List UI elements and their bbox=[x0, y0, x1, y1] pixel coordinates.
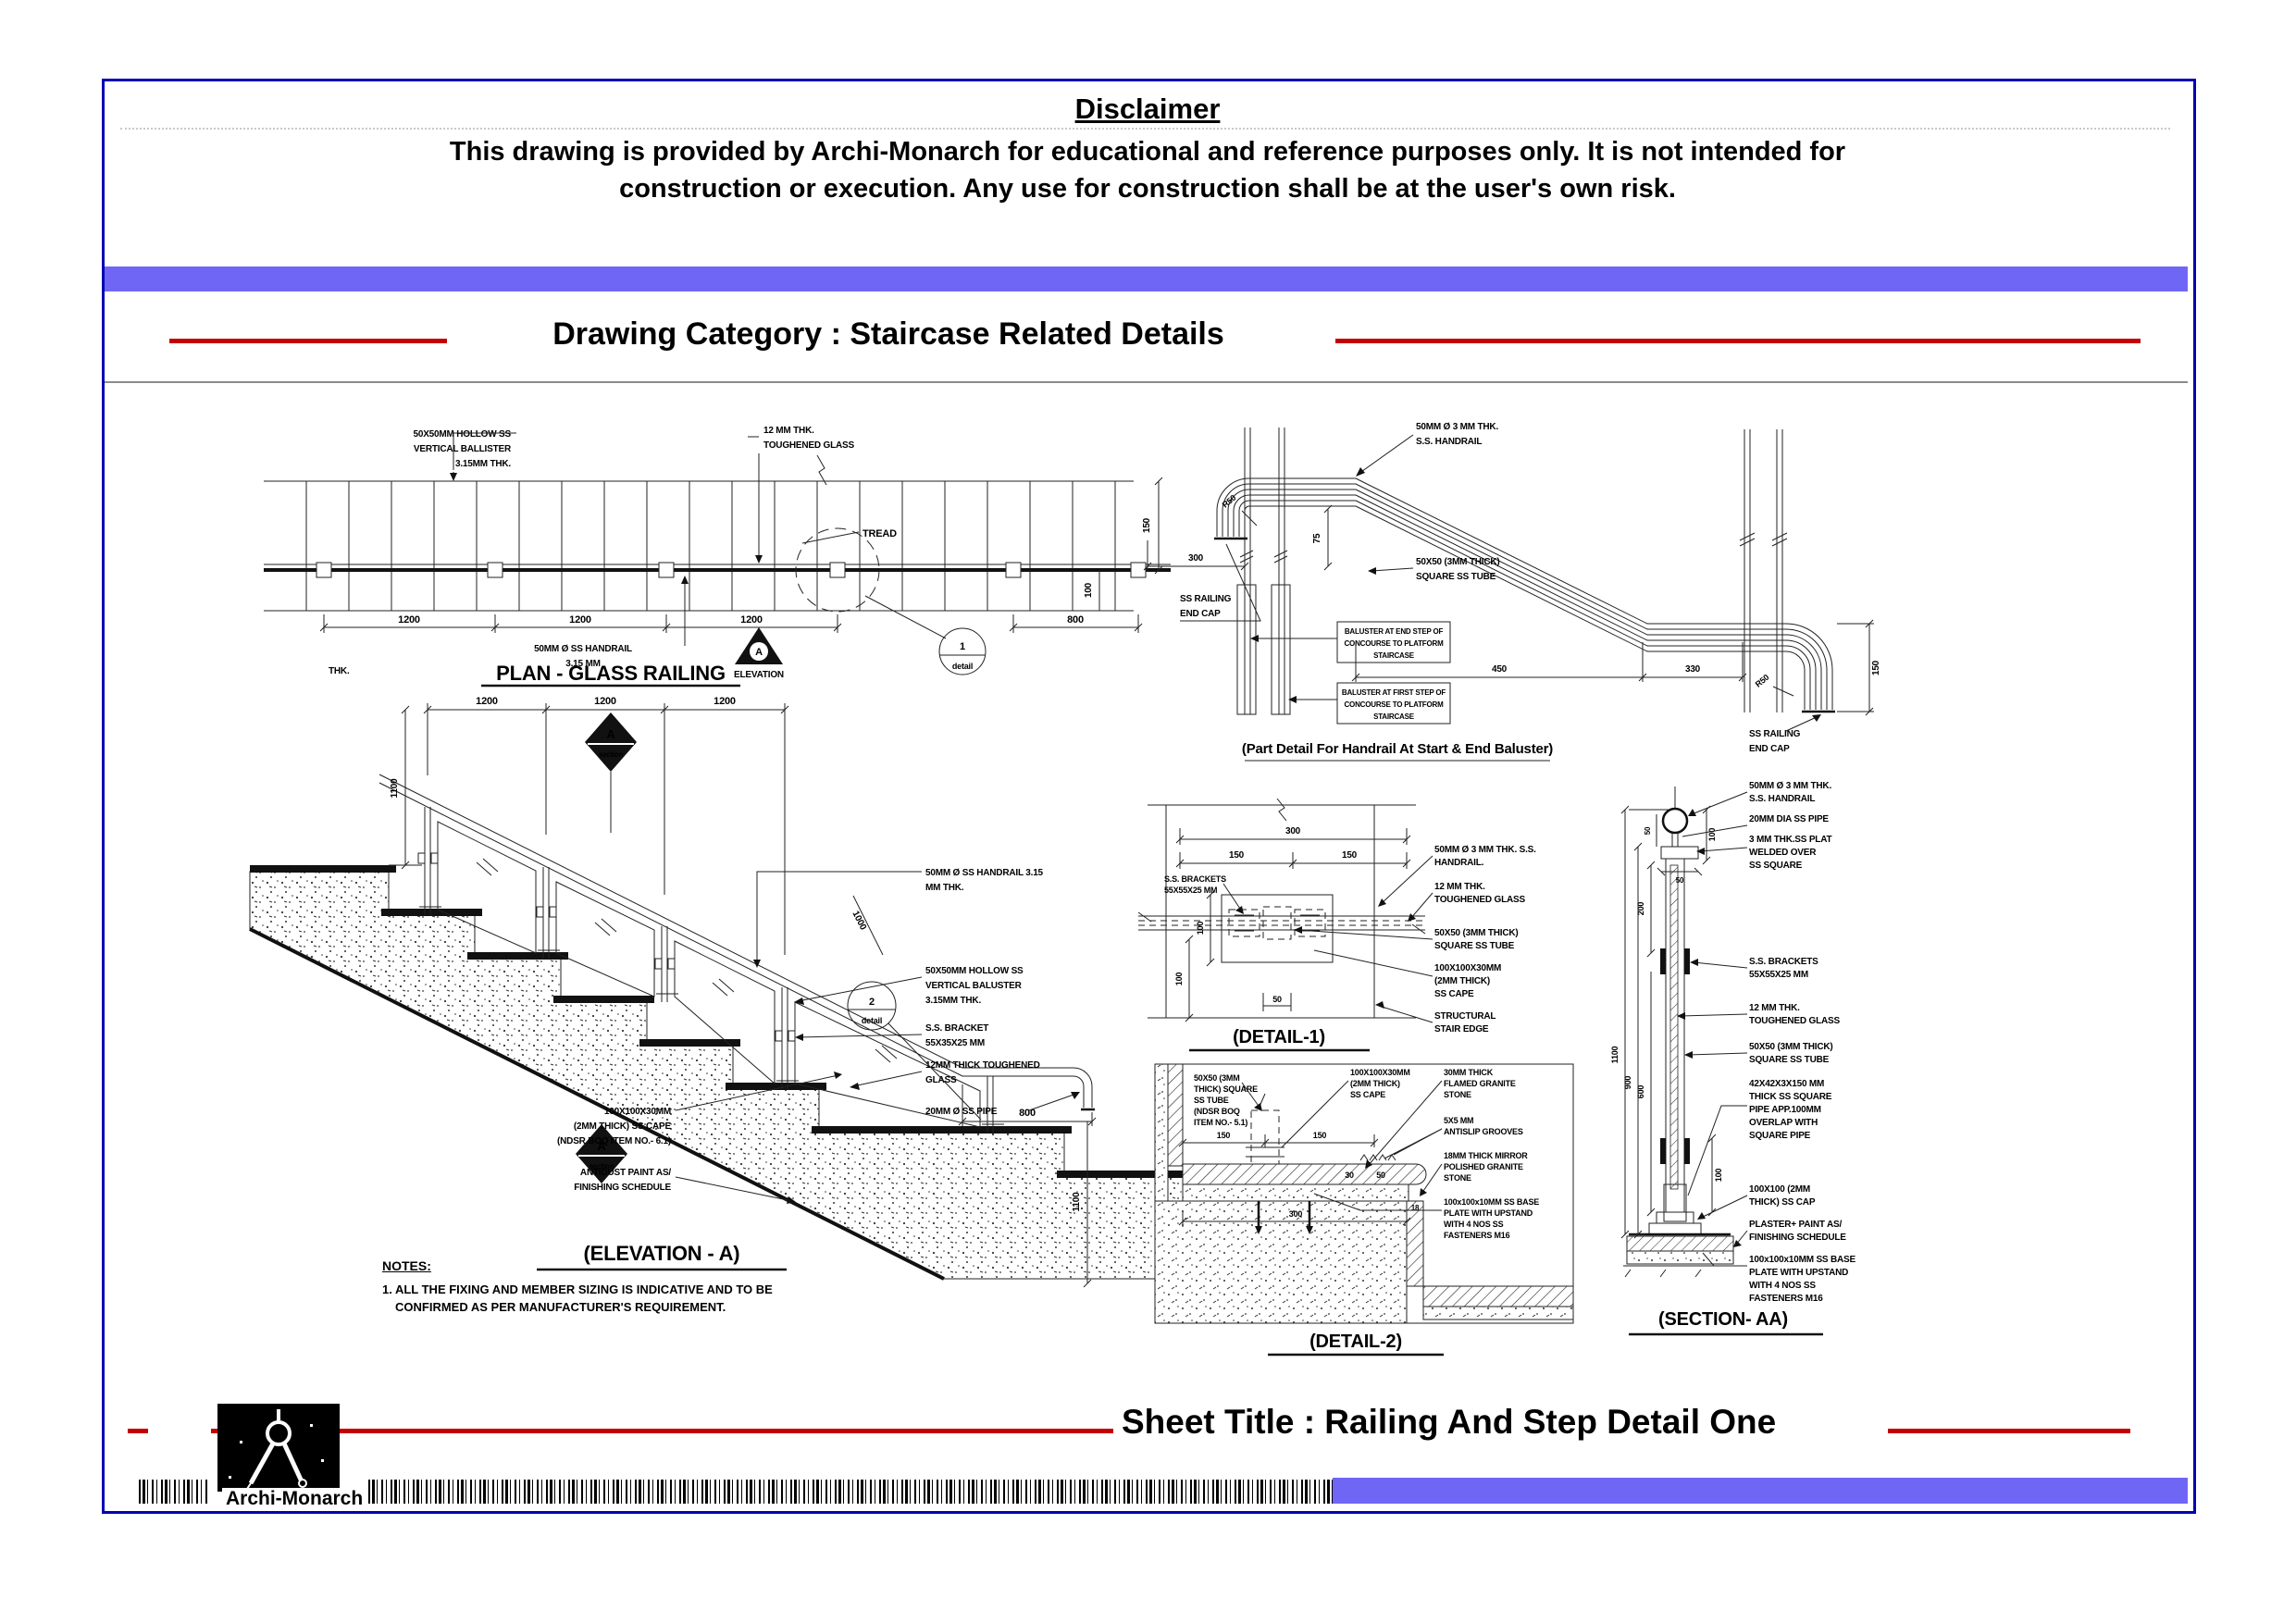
d2-cape-label-3: SS CAPE bbox=[1350, 1090, 1385, 1099]
elev-handrail-label: 50MM Ø SS HANDRAIL 3.15 bbox=[925, 868, 1044, 878]
part-tube-label: 50X50 (3MM THICK) bbox=[1416, 557, 1500, 567]
sa-dim-50a: 50 bbox=[1644, 826, 1652, 835]
sa-glass-label: 12 MM THK. bbox=[1749, 1003, 1800, 1013]
notes-line2: CONFIRMED AS PER MANUFACTURER'S REQUIREM… bbox=[395, 1298, 1030, 1316]
d2-granite30-label: 30MM THICK bbox=[1444, 1068, 1494, 1077]
part-detail-dim-75: 75 bbox=[1312, 533, 1322, 543]
elev-dim-1000: 1000 bbox=[850, 910, 868, 933]
plan-dim-1200-a: 1200 bbox=[398, 614, 420, 626]
sa-tube-label-2: SQUARE SS TUBE bbox=[1749, 1055, 1830, 1065]
sa-tube-label: 50X50 (3MM THICK) bbox=[1749, 1042, 1833, 1052]
elev-dim-1100-right: 1100 bbox=[1072, 1192, 1082, 1212]
part-endcap-left-2: END CAP bbox=[1180, 609, 1221, 619]
elev-marker-top-text: section bbox=[599, 750, 624, 759]
sa-dim-50b: 50 bbox=[1676, 876, 1684, 885]
elev-dim-1200-c: 1200 bbox=[714, 696, 736, 707]
plan-title: PLAN - GLASS RAILING bbox=[496, 662, 726, 685]
bottom-accent-bar bbox=[1333, 1478, 2188, 1504]
elev-cape-label: 100X100X30MM bbox=[604, 1107, 671, 1117]
section-title: (SECTION- AA) bbox=[1658, 1309, 1788, 1330]
disclaimer-line1: This drawing is provided by Archi-Monarc… bbox=[148, 133, 2147, 170]
d2-dim-150b: 150 bbox=[1313, 1131, 1327, 1140]
box-end-line3: STAIRCASE bbox=[1373, 651, 1415, 660]
d2-granite18-label-3: STONE bbox=[1444, 1173, 1471, 1183]
elev-baluster-label: 50X50MM HOLLOW SS bbox=[925, 966, 1024, 976]
plan-bubble-text: detail bbox=[952, 662, 973, 671]
part-detail-dim-150: 150 bbox=[1871, 660, 1881, 675]
elev-bracket-label: S.S. BRACKET bbox=[925, 1023, 988, 1034]
detail2-title: (DETAIL-2) bbox=[1309, 1332, 1402, 1352]
d2-baseplate-label-4: FASTENERS M16 bbox=[1444, 1231, 1510, 1240]
plan-thk-label: THK. bbox=[329, 666, 350, 676]
sa-cap-label: 100X100 (2MM bbox=[1749, 1184, 1810, 1195]
category-heading: Drawing Category : Staircase Related Det… bbox=[463, 316, 1314, 353]
d2-dim-150a: 150 bbox=[1217, 1131, 1231, 1140]
section-title-group: (SECTION- AA) bbox=[1629, 1309, 1823, 1334]
plan-title-group: PLAN - GLASS RAILING bbox=[481, 662, 740, 686]
elev-dim-1200-a: 1200 bbox=[476, 696, 498, 707]
elev-bracket-label-2: 55X35X25 MM bbox=[925, 1038, 985, 1048]
elev-baluster-label-2: VERTICAL BALUSTER bbox=[925, 981, 1023, 991]
d1-dim-300: 300 bbox=[1285, 826, 1301, 836]
part-handrail-label-2: S.S. HANDRAIL bbox=[1416, 437, 1482, 447]
elev-dim-1100-left: 1100 bbox=[390, 778, 400, 799]
plan-baluster-label-3: 3.15MM THK. bbox=[455, 459, 511, 469]
notes-block: NOTES: 1. ALL THE FIXING AND MEMBER SIZI… bbox=[382, 1258, 1030, 1316]
d2-tube-label-5: ITEM NO.- 5.1) bbox=[1194, 1118, 1247, 1127]
elev-glass-label: 12MM THICK TOUGHENED bbox=[925, 1060, 1040, 1071]
plan-baluster-label-2: VERTICAL BALLISTER bbox=[414, 444, 512, 454]
plan-dim-1200-c: 1200 bbox=[740, 614, 763, 626]
elev-antidust-label-2: FINISHING SCHEDULE bbox=[574, 1183, 671, 1193]
d2-granite18-label-2: POLISHED GRANITE bbox=[1444, 1162, 1523, 1171]
d2-dim-18: 18 bbox=[1411, 1204, 1420, 1212]
sa-brackets-label: S.S. BRACKETS bbox=[1749, 957, 1818, 967]
sa-cap-label-2: THICK) SS CAP bbox=[1749, 1197, 1816, 1208]
detail1-title: (DETAIL-1) bbox=[1233, 1027, 1325, 1047]
sa-dim-100a: 100 bbox=[1707, 828, 1717, 842]
notes-heading: NOTES: bbox=[382, 1258, 1030, 1273]
sa-pipe42-label: 42X42X3X150 MM bbox=[1749, 1079, 1824, 1089]
d1-handrail-label-2: HANDRAIL. bbox=[1434, 858, 1484, 868]
footer-rule-dash bbox=[128, 1429, 148, 1433]
sa-plate-label: 3 MM THK.SS PLAT bbox=[1749, 835, 1831, 845]
d1-dim-100b: 100 bbox=[1174, 973, 1184, 986]
plan-dim-1200-b: 1200 bbox=[569, 614, 591, 626]
sheet-title: Sheet Title : Railing And Step Detail On… bbox=[1122, 1403, 1776, 1442]
disclaimer-title: Disclaimer bbox=[148, 93, 2147, 126]
part-detail-r50-right: R50 bbox=[1754, 673, 1771, 689]
sa-dim-600: 600 bbox=[1636, 1085, 1645, 1099]
part-detail-dim-330: 330 bbox=[1685, 664, 1701, 675]
sa-brackets-label-2: 55X55X25 MM bbox=[1749, 970, 1808, 980]
sa-plaster-label-2: FINISHING SCHEDULE bbox=[1749, 1233, 1846, 1243]
plan-marker-text: ELEVATION bbox=[734, 670, 784, 680]
part-detail-dimensions: 300 75 450 330 150 bbox=[1144, 505, 1881, 715]
compass-icon bbox=[217, 1404, 340, 1492]
category-rule-left bbox=[169, 339, 447, 343]
d2-dim-300: 300 bbox=[1289, 1209, 1303, 1219]
plan-dim-800: 800 bbox=[1067, 614, 1084, 626]
d1-edge-label-2: STAIR EDGE bbox=[1434, 1024, 1489, 1035]
sa-dim-1100: 1100 bbox=[1610, 1046, 1620, 1063]
plan-geometry bbox=[264, 453, 1171, 638]
sa-glass-label-2: TOUGHENED GLASS bbox=[1749, 1016, 1840, 1026]
sa-dim-900: 900 bbox=[1623, 1076, 1632, 1090]
disclaimer-line2: construction or execution. Any use for c… bbox=[148, 170, 2147, 207]
d1-cape-label-2: (2MM THICK) bbox=[1434, 976, 1490, 986]
detail1-callouts: S.S. BRACKETS 55X55X25 MM 50MM Ø 3 MM TH… bbox=[1164, 845, 1536, 1050]
part-endcap-right-2: END CAP bbox=[1749, 744, 1790, 754]
elev-glass-label-2: GLASS bbox=[925, 1075, 957, 1085]
d2-antislip-label: 5X5 MM bbox=[1444, 1116, 1473, 1125]
disclaimer-block: Disclaimer This drawing is provided by A… bbox=[148, 93, 2147, 207]
sa-plate-label-3: SS SQUARE bbox=[1749, 861, 1803, 871]
barcode-left bbox=[139, 1480, 208, 1504]
category-rule-right bbox=[1335, 339, 2141, 343]
header-divider bbox=[105, 381, 2188, 383]
d1-dim-50: 50 bbox=[1272, 995, 1282, 1004]
sa-pipe-label: 20MM DIA SS PIPE bbox=[1749, 814, 1829, 824]
d2-granite30-label-3: STONE bbox=[1444, 1090, 1471, 1099]
plan-callouts: 50X50MM HOLLOW SS VERTICAL BALLISTER 3.1… bbox=[329, 426, 986, 686]
part-handrail-label: 50MM Ø 3 MM THK. bbox=[1416, 422, 1498, 432]
elev-marker-top-letter: A bbox=[606, 727, 615, 741]
plan-dim-100: 100 bbox=[1084, 582, 1094, 598]
d1-handrail-label: 50MM Ø 3 MM THK. S.S. bbox=[1434, 845, 1536, 855]
d1-brackets-label-2: 55X55X25 MM bbox=[1164, 886, 1217, 895]
d2-baseplate-label-3: WITH 4 NOS SS bbox=[1444, 1220, 1504, 1229]
sa-pipe42-label-3: PIPE APP.100MM bbox=[1749, 1105, 1821, 1115]
elev-bubble-text: detail bbox=[862, 1016, 882, 1025]
sa-baseplate-label-3: WITH 4 NOS SS bbox=[1749, 1281, 1816, 1291]
d2-baseplate-label-2: PLATE WITH UPSTAND bbox=[1444, 1208, 1533, 1218]
sa-handrail-label: 50MM Ø 3 MM THK. bbox=[1749, 781, 1831, 791]
plan-glass-railing-drawing: 1200 1200 1200 800 150 100 50X50MM HOLLO… bbox=[259, 400, 1185, 687]
detail-2-drawing: 150 150 30 50 300 18 50X50 (3MM THICK) S… bbox=[1138, 1055, 1657, 1365]
sa-plaster-label: PLASTER+ PAINT AS/ bbox=[1749, 1220, 1842, 1230]
footer-rule-left bbox=[211, 1429, 1113, 1433]
d1-glass-label-2: TOUGHENED GLASS bbox=[1434, 895, 1525, 905]
plan-baluster-label: 50X50MM HOLLOW SS bbox=[413, 429, 511, 440]
d2-granite30-label-2: FLAMED GRANITE bbox=[1444, 1079, 1516, 1088]
sa-dim-200: 200 bbox=[1636, 902, 1645, 916]
d2-tube-label-3: SS TUBE bbox=[1194, 1096, 1229, 1105]
sa-baseplate-label-4: FASTENERS M16 bbox=[1749, 1294, 1823, 1304]
detail1-title-group: (DETAIL-1) bbox=[1189, 1027, 1370, 1050]
d2-cape-label-2: (2MM THICK) bbox=[1350, 1079, 1400, 1088]
d2-antislip-label-2: ANTISLIP GROOVES bbox=[1444, 1127, 1523, 1136]
plan-dimensions: 1200 1200 1200 800 150 100 bbox=[320, 477, 1162, 633]
detail-bubble-1-icon: 1 detail bbox=[939, 628, 986, 675]
d2-baseplate-label: 100x100x10MM SS BASE bbox=[1444, 1197, 1539, 1207]
sa-plate-label-2: WELDED OVER bbox=[1749, 848, 1817, 858]
baluster-end-step-box: BALUSTER AT END STEP OF CONCOURSE TO PLA… bbox=[1250, 622, 1450, 663]
elev-pipe-label: 20MM Ø SS PIPE bbox=[925, 1107, 998, 1117]
plan-bubble-num: 1 bbox=[960, 641, 965, 652]
elev-antidust-label: ANTIDUST PAINT AS/ bbox=[580, 1168, 671, 1178]
part-tube-label-2: SQUARE SS TUBE bbox=[1416, 572, 1496, 582]
d1-edge-label: STRUCTURAL bbox=[1434, 1011, 1496, 1022]
d1-brackets-label: S.S. BRACKETS bbox=[1164, 874, 1226, 884]
d2-dim-50: 50 bbox=[1376, 1171, 1385, 1180]
top-accent-bar bbox=[105, 266, 2188, 291]
elev-cape-label-3: (NDSR BOQ ITEM NO.- 6.1) bbox=[557, 1136, 671, 1146]
detail2-title-group: (DETAIL-2) bbox=[1268, 1332, 1444, 1355]
d1-glass-label: 12 MM THK. bbox=[1434, 882, 1485, 892]
plan-glass-label: 12 MM THK. bbox=[763, 426, 814, 436]
elev-baluster-label-3: 3.15MM THK. bbox=[925, 996, 981, 1006]
footer-rule-right bbox=[1888, 1429, 2130, 1433]
sa-dim-100b: 100 bbox=[1714, 1169, 1723, 1183]
sa-handrail-label-2: S.S. HANDRAIL bbox=[1749, 794, 1815, 804]
section-marker-top-icon: A section bbox=[585, 712, 637, 833]
plan-marker-letter: A bbox=[755, 647, 763, 658]
section-aa-drawing: 1100 900 200 600 100 50 50 100 50MM Ø 3 … bbox=[1610, 777, 2008, 1342]
barcode-right bbox=[368, 1480, 1333, 1504]
sa-baseplate-label: 100x100x10MM SS BASE bbox=[1749, 1255, 1855, 1265]
part-detail-geometry: R50 R50 bbox=[1214, 427, 1835, 714]
box-end-line1: BALUSTER AT END STEP OF bbox=[1345, 627, 1444, 636]
d2-tube-label-2: THICK) SQUARE bbox=[1194, 1084, 1258, 1094]
d2-tube-label-4: (NDSR BOQ bbox=[1194, 1107, 1240, 1116]
plan-handrail-label: 50MM Ø SS HANDRAIL bbox=[534, 644, 632, 654]
brand-name: Archi-Monarch bbox=[222, 1488, 366, 1510]
elev-handrail-label-2: MM THK. bbox=[925, 883, 964, 893]
d2-cape-label: 100X100X30MM bbox=[1350, 1068, 1410, 1077]
d1-dim-150b: 150 bbox=[1342, 850, 1358, 861]
d1-dim-100a: 100 bbox=[1196, 922, 1205, 935]
drawing-sheet: Disclaimer This drawing is provided by A… bbox=[0, 0, 2296, 1623]
elevation-marker-icon: A ELEVATION bbox=[734, 627, 784, 680]
notes-line1: 1. ALL THE FIXING AND MEMBER SIZING IS I… bbox=[382, 1281, 1030, 1298]
elev-cape-label-2: (2MM THICK) SS CAPE bbox=[574, 1121, 672, 1132]
d1-cape-label: 100X100X30MM bbox=[1434, 963, 1501, 973]
box-end-line2: CONCOURSE TO PLATFORM bbox=[1344, 639, 1444, 648]
sa-pipe42-label-4: OVERLAP WITH bbox=[1749, 1118, 1818, 1128]
d1-tube-label: 50X50 (3MM THICK) bbox=[1434, 928, 1519, 938]
d2-tube-label: 50X50 (3MM bbox=[1194, 1073, 1240, 1083]
section-geometry bbox=[1623, 787, 1740, 1277]
elev-bubble-num: 2 bbox=[869, 997, 875, 1008]
d1-tube-label-2: SQUARE SS TUBE bbox=[1434, 941, 1515, 951]
d2-dim-30: 30 bbox=[1345, 1171, 1354, 1180]
part-detail-dim-450: 450 bbox=[1492, 664, 1508, 675]
detail1-dimensions: 300 150 150 100 100 50 bbox=[1174, 826, 1410, 1022]
sa-pipe42-label-5: SQUARE PIPE bbox=[1749, 1131, 1811, 1141]
sa-baseplate-label-2: PLATE WITH UPSTAND bbox=[1749, 1268, 1848, 1278]
archi-monarch-logo bbox=[217, 1404, 340, 1492]
sa-pipe42-label-2: THICK SS SQUARE bbox=[1749, 1092, 1832, 1102]
plan-tread-label: TREAD bbox=[863, 528, 897, 539]
d2-granite18-label: 18MM THICK MIRROR bbox=[1444, 1151, 1528, 1160]
d1-cape-label-3: SS CAPE bbox=[1434, 989, 1474, 999]
plan-glass-label-2: TOUGHENED GLASS bbox=[763, 440, 854, 451]
d1-dim-150a: 150 bbox=[1229, 850, 1245, 861]
section-dimensions: 1100 900 200 600 100 50 50 100 bbox=[1610, 806, 1723, 1238]
detail-1-drawing: 300 150 150 100 100 50 S.S. BRACKETS 55X… bbox=[1138, 791, 1657, 1055]
part-detail-dim-300: 300 bbox=[1188, 553, 1204, 564]
part-endcap-left: SS RAILING bbox=[1180, 594, 1232, 604]
elev-dim-1200-b: 1200 bbox=[594, 696, 616, 707]
part-endcap-right: SS RAILING bbox=[1749, 729, 1801, 739]
